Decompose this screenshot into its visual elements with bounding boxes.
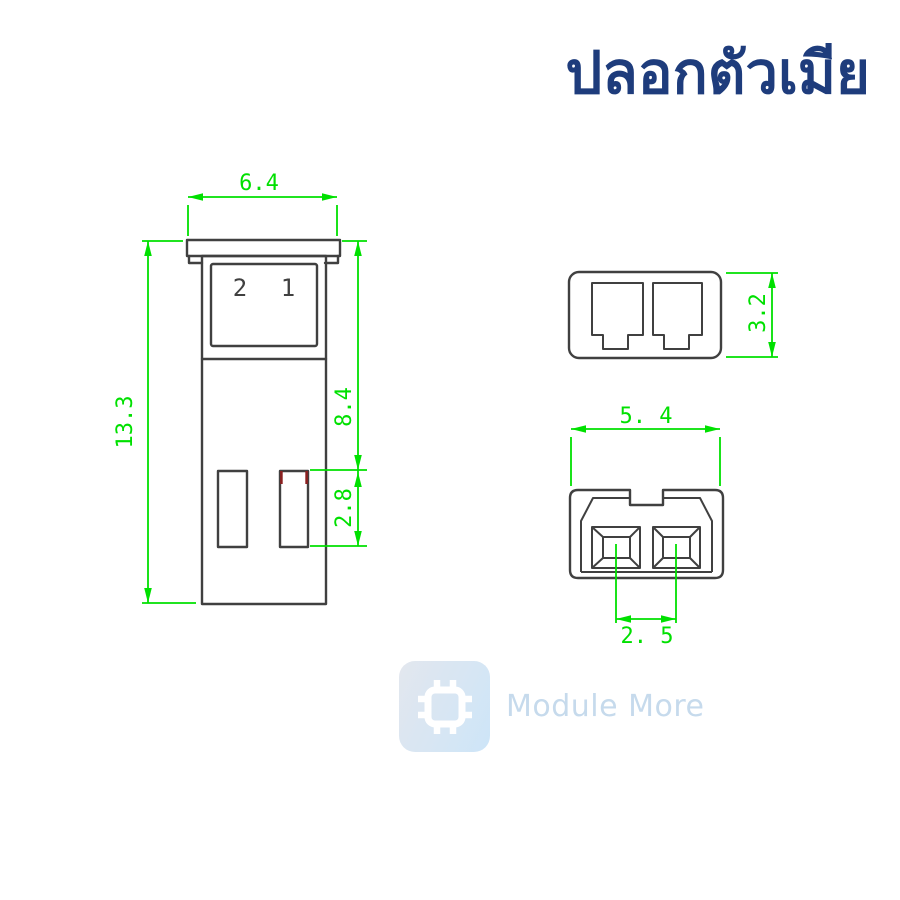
dimension-height-13-3: 13.3 (113, 241, 196, 603)
front-flange (187, 240, 340, 256)
dim-label-2-8: 2.8 (332, 488, 357, 528)
dimension-slot-2-8: 2.8 (310, 470, 367, 546)
dimension-width-6-4: 6.4 (188, 171, 337, 236)
dim-label-3-2: 3.2 (746, 293, 771, 333)
front-slot-right (280, 471, 308, 547)
dim-label-2-5: 2. 5 (621, 624, 674, 649)
page: ปลอกตัวเมีย 2 1 (0, 0, 900, 900)
watermark-brand: Module More (506, 689, 705, 724)
watermark-tile (399, 661, 490, 752)
bottom-view: 5. 4 (570, 404, 723, 649)
watermark: Module More (399, 661, 705, 752)
dimension-width-5-4: 5. 4 (571, 404, 720, 486)
bottom-inner-left (581, 498, 630, 572)
dimension-depth-3-2: 3.2 (726, 273, 778, 357)
front-socket-window (211, 264, 317, 346)
top-cavity-left (592, 283, 643, 349)
front-body (202, 256, 326, 604)
top-view: 3.2 (569, 272, 778, 358)
dim-label-6-4: 6.4 (239, 171, 279, 196)
technical-drawing: 2 1 6.4 13.3 (0, 0, 900, 900)
dim-label-13-3: 13.3 (113, 396, 138, 449)
dim-label-5-4: 5. 4 (620, 404, 673, 429)
dimension-upper-8-4: 8.4 (332, 241, 367, 470)
front-view: 2 1 6.4 13.3 (113, 171, 367, 604)
pin-label-1: 1 (281, 274, 295, 302)
dim-label-8-4: 8.4 (332, 387, 357, 427)
pin-label-2: 2 (233, 274, 247, 302)
front-slot-left (218, 471, 247, 547)
bottom-inner-right (663, 498, 712, 572)
chip-icon (414, 676, 476, 738)
top-cavity-right (653, 283, 702, 349)
dimension-pitch-2-5: 2. 5 (616, 544, 676, 649)
